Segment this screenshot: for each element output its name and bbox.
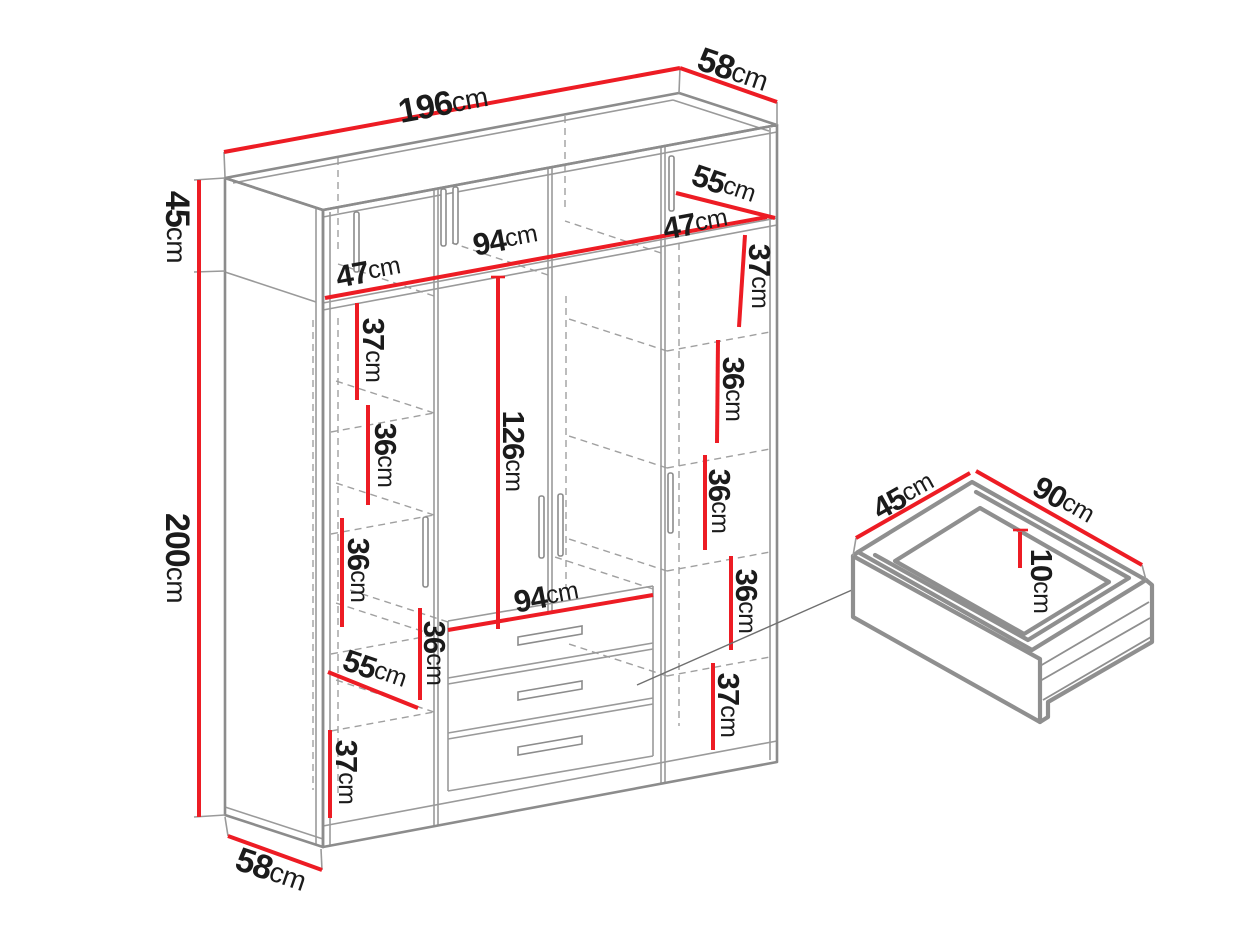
label-right-gap1-37: 37cm — [743, 244, 778, 309]
label-upper-height-45: 45cm — [158, 191, 196, 263]
upper-door-handle-center-right — [453, 187, 458, 244]
label-bottom-depth-58: 58cm — [231, 840, 312, 899]
label-right-gap4-36: 36cm — [730, 569, 765, 634]
label-right-gap3-36: 36cm — [703, 469, 738, 534]
wardrobe-left-face — [225, 178, 323, 847]
label-top-depth-58: 58cm — [693, 40, 774, 99]
label-left-gap3-36: 36cm — [342, 538, 377, 603]
label-right-gap2-36: 36cm — [717, 357, 752, 422]
label-left-gap2-36: 36cm — [369, 423, 404, 488]
label-left-gap4-36: 36cm — [418, 621, 453, 686]
main-door-handle-right — [668, 473, 673, 533]
label-drawer-height-10: 10cm — [1025, 549, 1060, 614]
diagram-svg: 196cm 58cm 45cm 200cm 58cm 47cm 94cm 47c… — [0, 0, 1246, 934]
main-door-handle-center-left — [539, 496, 544, 558]
label-width-196: 196cm — [395, 77, 490, 131]
label-right-gap5-37: 37cm — [712, 673, 747, 738]
main-door-handle-left — [423, 517, 428, 587]
dim-line-right-gap2-36 — [717, 340, 718, 443]
main-door-handle-center-right — [558, 494, 563, 556]
label-main-height-200: 200cm — [158, 513, 196, 603]
label-left-gap1-37: 37cm — [357, 318, 392, 383]
upper-door-handle-center-left — [441, 189, 446, 246]
label-hanging-126: 126cm — [497, 410, 532, 491]
upper-door-handle-right — [669, 156, 674, 211]
label-left-gap5-37: 37cm — [330, 740, 365, 805]
furniture-dimension-diagram: 196cm 58cm 45cm 200cm 58cm 47cm 94cm 47c… — [0, 0, 1246, 934]
